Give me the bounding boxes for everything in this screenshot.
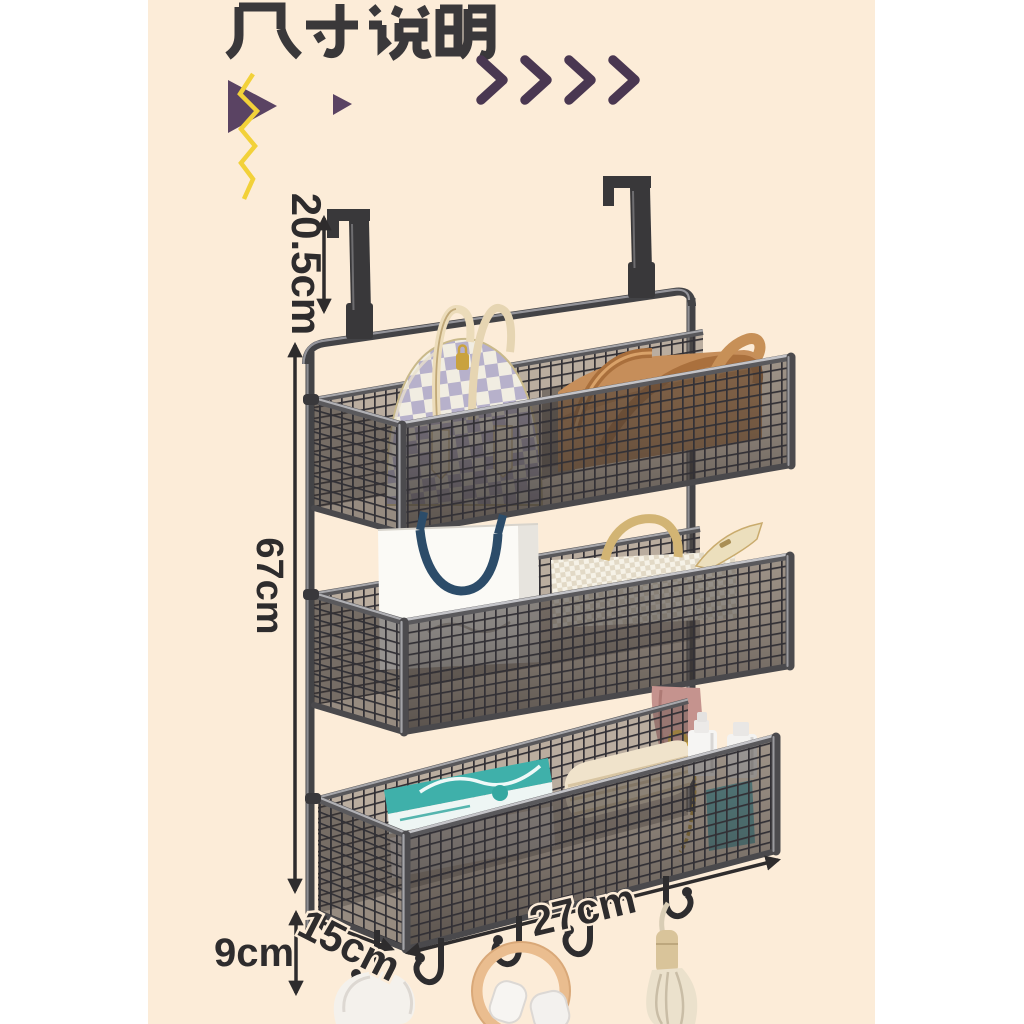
- svg-text:9cm: 9cm: [214, 931, 294, 975]
- svg-text:67cm: 67cm: [248, 537, 290, 634]
- svg-text:20.5cm: 20.5cm: [283, 193, 330, 335]
